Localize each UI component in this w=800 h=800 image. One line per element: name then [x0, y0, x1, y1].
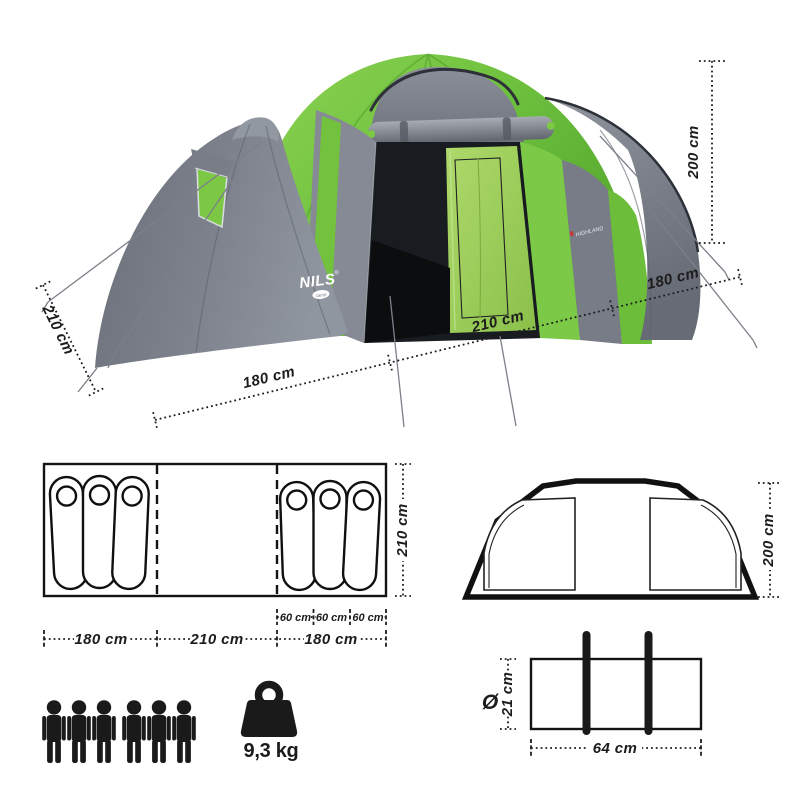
dim-label-front-left: 180 cm [241, 363, 297, 392]
packed-size-diagram: 21 cm Ø 64 cm [482, 631, 701, 757]
front-view-door-left [484, 498, 575, 590]
front-view-height-label: 200 cm [760, 513, 777, 567]
front-view-diagram: 200 cm [466, 481, 782, 597]
person-icon [147, 700, 171, 763]
section-width-dimensions: 180 cm 210 cm 180 cm [44, 630, 386, 648]
bag-width-label: 60 cm [280, 612, 311, 624]
sleeping-bags-left [49, 476, 149, 590]
sleeping-bags-right [280, 481, 381, 591]
diameter-sign: Ø [482, 691, 499, 714]
sleeping-bag [112, 476, 150, 589]
dim-label-depth: 210 cm [38, 301, 77, 357]
spec-canvas: HIGHLAND NILS ® camp [0, 0, 800, 800]
packed-diameter-label: 21 cm [499, 672, 516, 718]
packed-length-label: 64 cm [593, 740, 638, 757]
packed-bag-outline [531, 659, 701, 729]
section-width-label: 180 cm [304, 631, 357, 648]
section-width-label: 210 cm [189, 631, 243, 648]
person-icon [67, 700, 91, 763]
bag-width-label: 60 cm [352, 612, 383, 624]
sleeping-bag [280, 481, 317, 590]
bag-width-dimensions: 60 cm 60 cm 60 cm [277, 609, 386, 625]
person-icon [42, 700, 66, 763]
plan-depth-label: 210 cm [394, 503, 411, 557]
capacity-icons [42, 700, 196, 763]
sleeping-bag [342, 481, 381, 591]
sleeping-bag [83, 476, 116, 588]
section-width-label: 180 cm [74, 631, 127, 648]
floor-plan-diagram: 210 cm 60 cm 60 cm 60 cm 180 cm 2 [44, 464, 411, 648]
dim-label-height: 200 cm [685, 125, 702, 179]
sleeping-bag [314, 481, 347, 589]
tent-product-spec-image: HIGHLAND NILS ® camp [0, 0, 800, 800]
person-icon [172, 700, 196, 763]
person-icon [92, 700, 116, 763]
front-view-door-right [650, 498, 741, 590]
weight-icon [241, 700, 297, 737]
weight-icon-group: 9,3 kg [241, 685, 299, 763]
person-icon [122, 700, 146, 763]
packed-strap [645, 631, 653, 735]
tent-photo: HIGHLAND NILS ® camp [42, 54, 757, 427]
bag-width-label: 60 cm [316, 612, 347, 624]
packed-strap [583, 631, 591, 735]
weight-label: 9,3 kg [244, 740, 299, 762]
